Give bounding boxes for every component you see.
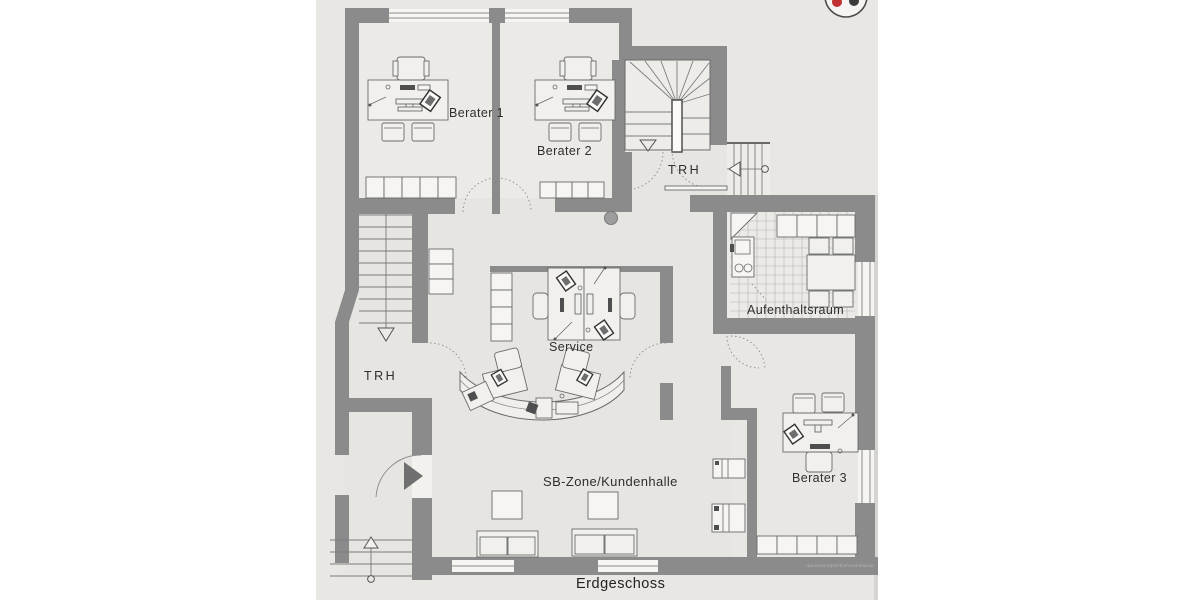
sofa-1 (477, 531, 538, 557)
label-berater1: Berater 1 (449, 106, 504, 120)
label-floor: Erdgeschoss (576, 576, 665, 592)
label-sb-zone: SB-Zone/Kundenhalle (543, 474, 678, 489)
kitchenette (730, 237, 754, 277)
berater3-cabinets (757, 536, 857, 554)
sofa-2 (572, 529, 637, 556)
window-right-1 (858, 262, 874, 316)
window-top-2 (505, 9, 569, 22)
window-bottom-2 (598, 560, 658, 572)
window-bottom-1 (452, 560, 514, 572)
label-berater3: Berater 3 (792, 471, 847, 485)
floorplan-page: Berater 1 Berater 2 TRH Aufenthaltsraum … (0, 0, 1200, 600)
berater1-cabinets (366, 177, 456, 198)
label-service: Service (549, 340, 593, 354)
berater2-cabinets (540, 182, 604, 198)
window-right-2 (858, 450, 874, 503)
label-berater2: Berater 2 (537, 144, 592, 158)
label-trh-lower: TRH (364, 369, 397, 383)
service-furniture (533, 267, 635, 341)
structural-column (605, 212, 618, 225)
label-aufenthaltsraum: Aufenthaltsraum (747, 303, 844, 317)
shelf-under-stair (665, 186, 727, 190)
exterior-steps-upper-right (727, 143, 770, 195)
stairwell-upper-stair (625, 60, 710, 152)
floorplan-drawing: Berater 1 Berater 2 TRH Aufenthaltsraum … (0, 0, 1200, 600)
watermark-text: raumkonzepte/kommunikation (806, 563, 874, 568)
label-trh-upper: TRH (668, 163, 701, 177)
window-top-1 (389, 9, 489, 22)
